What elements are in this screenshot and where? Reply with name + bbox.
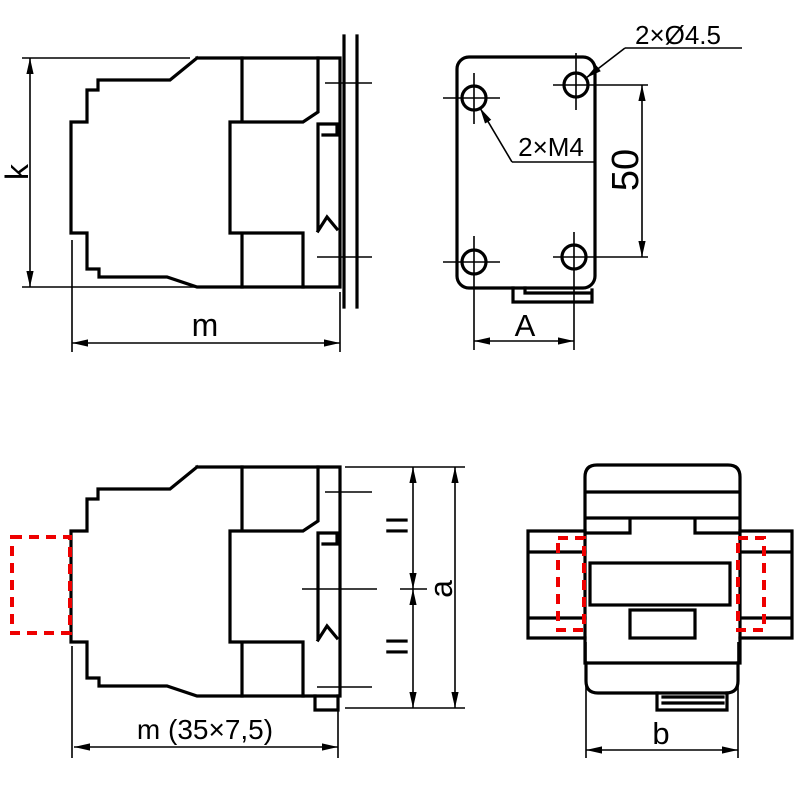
body-lower-outline xyxy=(586,663,738,693)
body-outline xyxy=(71,467,340,696)
m-dimension-label: m xyxy=(192,307,219,343)
k-dimension-label: k xyxy=(0,163,35,180)
a-width-label: A xyxy=(515,308,536,343)
rear-din-tab xyxy=(513,288,592,302)
body-outline xyxy=(71,58,340,287)
top-view: b xyxy=(528,465,792,758)
rear-mounting-view: 2×Ø4.5 2×M4 50 A xyxy=(443,20,742,350)
side-view-upper: k m xyxy=(0,36,372,352)
contactor-dimension-drawing: k m 2×Ø4.5 2×M4 50 A = = xyxy=(0,0,800,800)
small-recess xyxy=(630,610,695,638)
body-internal-lines xyxy=(230,467,318,696)
technical-drawing-page: k m 2×Ø4.5 2×M4 50 A = = xyxy=(0,0,800,800)
bottom-din-tab xyxy=(315,696,338,710)
m-rail-label: m (35×7,5) xyxy=(137,714,273,745)
clearance-holes-label: 2×Ø4.5 xyxy=(635,20,721,50)
body-internal-lines xyxy=(230,58,318,287)
hole-spacing-label: 50 xyxy=(605,149,647,191)
accessory-dashed-box xyxy=(12,537,70,633)
tapped-holes-label: 2×M4 xyxy=(518,132,584,162)
side-view-lower: = = a m (35×7,5) xyxy=(12,467,465,758)
equal-spacing-mark-upper: = xyxy=(384,501,410,550)
hole-centerlines xyxy=(443,53,648,350)
a-height-label: a xyxy=(423,580,459,598)
bottom-din-tab xyxy=(657,693,727,710)
mounting-holes xyxy=(462,73,588,274)
din-clip-detail xyxy=(318,124,337,231)
equal-spacing-mark-lower: = xyxy=(384,622,410,671)
din-clip-detail xyxy=(318,533,337,640)
center-recess xyxy=(590,563,730,605)
b-width-label: b xyxy=(652,716,669,751)
din-rail-section xyxy=(344,36,357,307)
tapped-holes-leader xyxy=(480,108,512,162)
